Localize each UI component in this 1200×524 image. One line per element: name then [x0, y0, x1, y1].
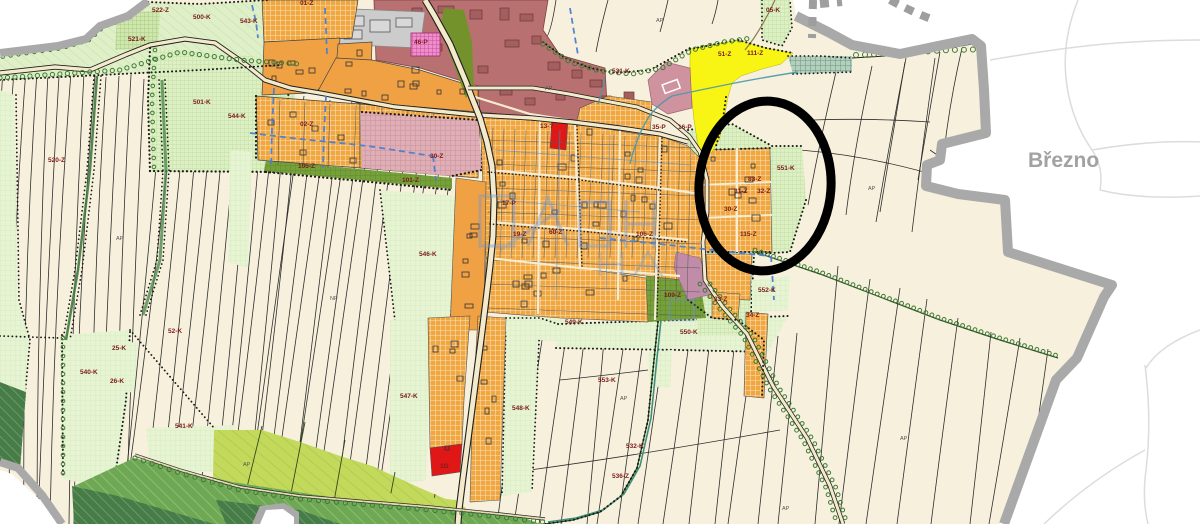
svg-text:AP: AP: [116, 236, 124, 242]
svg-text:500-K: 500-K: [193, 14, 211, 21]
svg-text:33-Z: 33-Z: [714, 296, 727, 303]
svg-text:540-K: 540-K: [80, 369, 98, 376]
svg-text:AP: AP: [868, 186, 876, 192]
svg-text:552-K: 552-K: [758, 287, 776, 294]
svg-text:551-K: 551-K: [777, 165, 795, 172]
svg-text:31-Z: 31-Z: [734, 188, 747, 195]
svg-text:1G: 1G: [440, 463, 449, 470]
svg-text:16-P: 16-P: [678, 124, 692, 131]
svg-text:109-Z: 109-Z: [664, 292, 681, 299]
svg-text:101-Z: 101-Z: [402, 177, 419, 184]
svg-text:543-K: 543-K: [240, 18, 258, 25]
svg-text:AP: AP: [243, 462, 251, 468]
svg-text:AP: AP: [782, 506, 790, 512]
svg-text:AP: AP: [656, 18, 664, 24]
svg-text:549-K: 549-K: [565, 319, 583, 326]
svg-text:553-K: 553-K: [598, 377, 616, 384]
svg-text:19-Z: 19-Z: [513, 231, 526, 238]
svg-text:32-Z: 32-Z: [757, 188, 770, 195]
svg-text:550-K: 550-K: [680, 329, 698, 336]
svg-text:547-K: 547-K: [400, 393, 418, 400]
svg-text:531-K: 531-K: [612, 68, 630, 75]
svg-text:532-K: 532-K: [626, 443, 644, 450]
svg-text:AP: AP: [900, 436, 908, 442]
svg-text:30-Z: 30-Z: [724, 206, 737, 213]
svg-text:26-K: 26-K: [110, 378, 124, 385]
svg-text:105-Z: 105-Z: [298, 163, 315, 170]
svg-text:111-Z: 111-Z: [747, 50, 763, 57]
svg-text:34-Z: 34-Z: [746, 312, 759, 319]
svg-text:541-K: 541-K: [175, 423, 193, 430]
svg-text:106-Z: 106-Z: [636, 231, 653, 238]
svg-text:Březno: Březno: [1028, 149, 1099, 172]
svg-text:30-Z: 30-Z: [430, 153, 443, 160]
svg-text:536-Z: 536-Z: [612, 473, 629, 480]
svg-text:17-P: 17-P: [502, 200, 516, 207]
svg-text:548-K: 548-K: [512, 405, 530, 412]
svg-text:520-Z: 520-Z: [48, 157, 65, 164]
svg-text:501-K: 501-K: [193, 99, 211, 106]
svg-text:13-?: 13-?: [540, 123, 553, 130]
svg-text:NP: NP: [330, 296, 338, 302]
svg-text:83-Z: 83-Z: [748, 176, 761, 183]
svg-text:46-P: 46-P: [414, 39, 428, 46]
svg-text:51-Z: 51-Z: [718, 51, 731, 58]
svg-text:546-K: 546-K: [419, 251, 437, 258]
svg-text:01-Z: 01-Z: [300, 0, 313, 7]
svg-text:AP: AP: [620, 396, 628, 402]
svg-text:AP: AP: [545, 86, 553, 92]
svg-text:35-P: 35-P: [652, 124, 666, 131]
svg-text:544-K: 544-K: [228, 113, 246, 120]
svg-text:05-K: 05-K: [766, 7, 780, 14]
svg-text:02-Z: 02-Z: [300, 121, 313, 128]
svg-text:25-K: 25-K: [112, 345, 126, 352]
svg-text:115-Z: 115-Z: [740, 231, 757, 238]
svg-text:521-K: 521-K: [128, 36, 146, 43]
svg-text:522-Z: 522-Z: [152, 7, 169, 14]
svg-text:60-Z: 60-Z: [549, 229, 562, 236]
svg-text:52-K: 52-K: [168, 328, 182, 335]
